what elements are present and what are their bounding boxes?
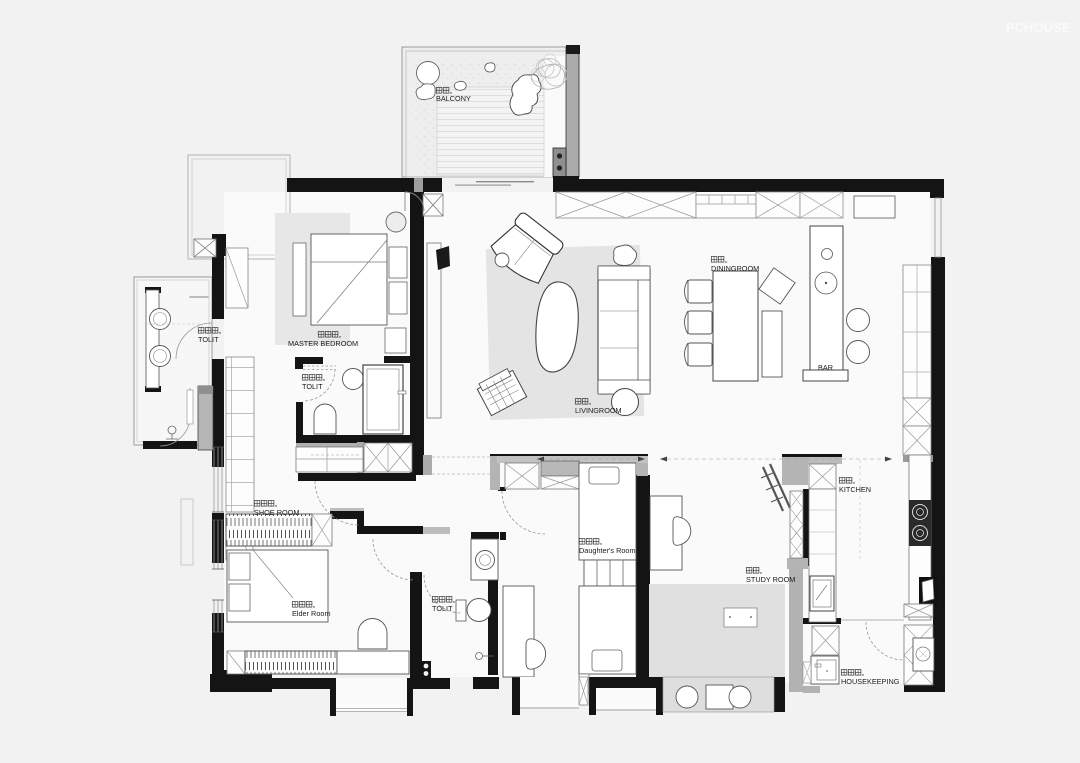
svg-text:KITCHEN: KITCHEN [839, 485, 871, 494]
svg-text:TOLIT: TOLIT [432, 604, 453, 613]
svg-text:PCHOUSE: PCHOUSE [1006, 20, 1071, 35]
svg-text:SHOE ROOM: SHOE ROOM [254, 508, 299, 517]
svg-text:TOLIT: TOLIT [302, 382, 323, 391]
svg-text:DININGROOM: DININGROOM [711, 264, 759, 273]
svg-text:Daughter's Room: Daughter's Room [579, 546, 636, 555]
svg-text:Elder Room: Elder Room [292, 609, 331, 618]
svg-text:BAR: BAR [818, 363, 833, 372]
svg-text:TOLIT: TOLIT [198, 335, 219, 344]
svg-text:LIVINGROOM: LIVINGROOM [575, 406, 622, 415]
svg-text:STUDY ROOM: STUDY ROOM [746, 575, 795, 584]
svg-text:BALCONY: BALCONY [436, 94, 471, 103]
svg-text:HOUSEKEEPING: HOUSEKEEPING [841, 677, 900, 686]
svg-text:MASTER BEDROOM: MASTER BEDROOM [288, 339, 358, 348]
